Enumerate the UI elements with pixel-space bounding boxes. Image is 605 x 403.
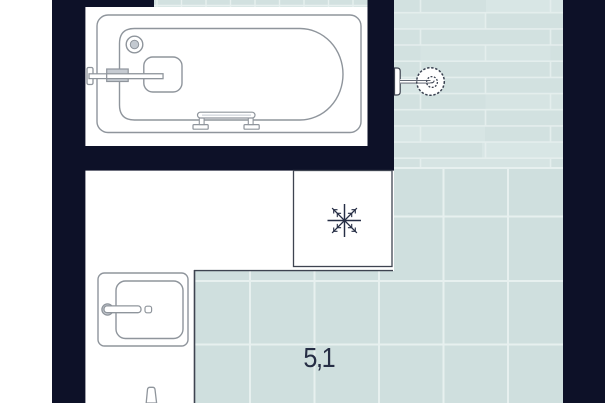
svg-text:5,1: 5,1 (303, 342, 335, 374)
